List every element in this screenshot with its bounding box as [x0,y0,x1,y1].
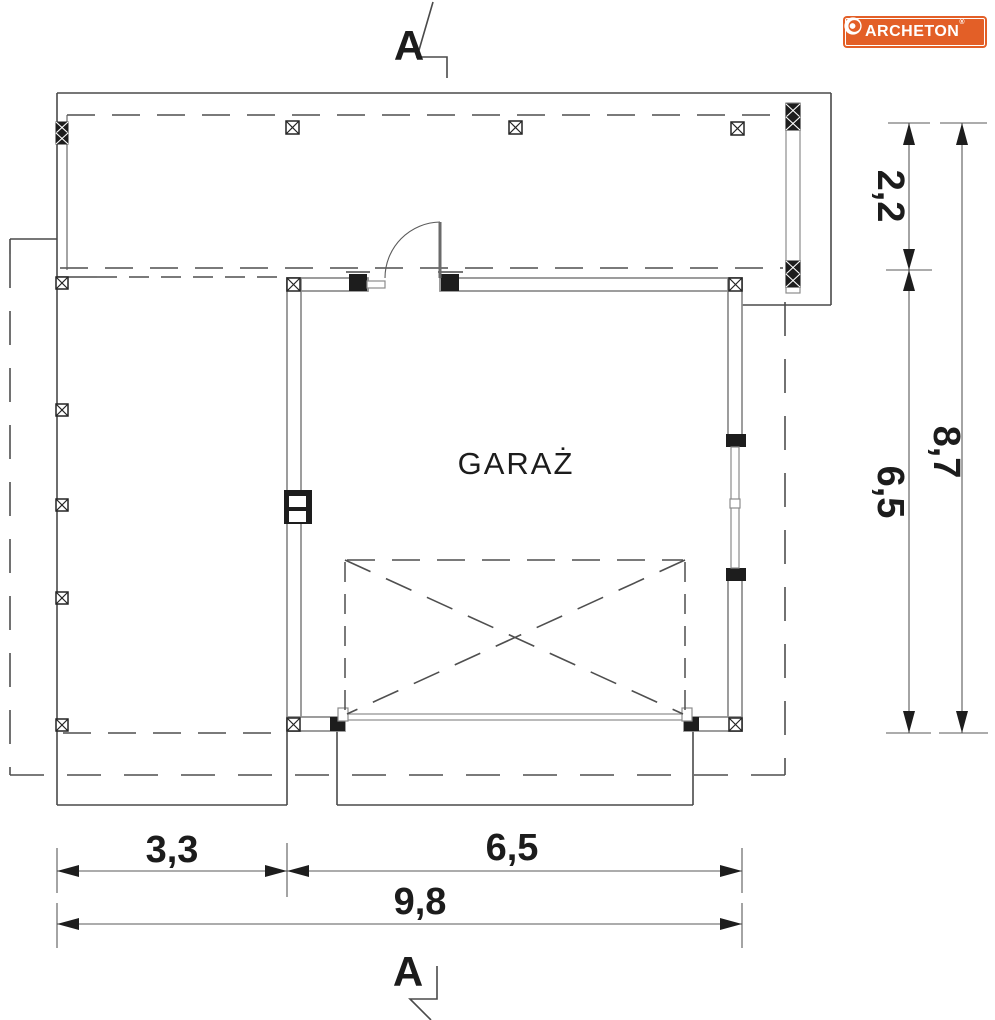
terrace-left [57,93,287,805]
column-marker-pair [786,104,800,130]
registered-trademark-symbol: ® [959,19,965,26]
column-marker [286,121,299,134]
column-marker-corner [287,718,300,731]
wall-right-upper [728,278,742,437]
wall-top-right-segment [440,278,742,291]
dimension-chain-right: 2,2 6,5 8,7 [869,123,988,733]
dim-value-right-lower: 6,5 [869,466,911,519]
gate-post-left [338,708,348,721]
column-marker-pair [56,122,68,144]
wall-right-lower [728,580,742,731]
column-marker [56,404,68,416]
archeton-logo-inner: ARCHETON® [845,18,985,46]
clearance-diagonal [345,560,683,714]
archeton-emblem-icon [843,16,863,36]
column-marker [56,592,68,604]
pier-top-left [349,274,367,291]
logo-wordmark: ARCHETON [865,23,959,40]
dim-arrow [720,865,742,877]
dim-arrow [956,123,968,145]
clearance-diagonal [347,560,685,714]
driveway-apron [337,731,693,805]
column-marker [509,121,522,134]
window-frame-top-block [726,434,746,447]
column-markers [56,121,744,731]
dim-value-right-upper: 2,2 [869,170,911,223]
canopy-band [57,93,831,305]
archeton-logo-text: ARCHETON® [865,24,965,40]
dim-arrow [903,270,915,291]
column-marker-pair [786,261,800,287]
dim-arrow [287,865,309,877]
floor-plan-sheet: A A [0,0,995,1020]
section-mark-top: A [394,2,447,78]
section-label-bottom: A [393,948,423,995]
archeton-logo: ARCHETON® [843,16,987,48]
dim-value-bottom-total: 9,8 [394,881,447,923]
window-frame-bottom-block [726,568,746,581]
pier-top-right [441,274,459,291]
section-mark-bottom: A [393,948,437,1020]
garage-gate [338,708,692,721]
entrance-door [385,222,440,278]
roof-outline [10,115,786,775]
dim-arrow [903,711,915,733]
gate-post-right [682,708,692,721]
dim-arrow [57,865,79,877]
column-marker [731,122,744,135]
dim-arrow [956,711,968,733]
dim-arrow [265,865,287,877]
dim-arrow [720,918,742,930]
column-marker-corner [729,718,742,731]
flue-duct [289,496,306,507]
column-marker-pairs [56,104,800,287]
dim-arrow [903,123,915,145]
gate-clearance-area [345,560,685,714]
dim-value-bottom-left: 3,3 [146,829,199,871]
room-label: GARAŻ [458,446,575,481]
column-marker [56,277,68,289]
column-marker-corner [287,278,300,291]
gate-leaf [345,714,685,720]
door-swing-arc [385,222,440,278]
window-mullion [730,499,740,508]
floor-plan-canvas: A A [0,0,995,1020]
dimension-chain-bottom: 3,3 6,5 9,8 [57,827,742,948]
garage-walls [287,272,742,731]
flue-block [284,490,312,524]
dim-arrow [903,249,915,270]
column-marker-corner [729,278,742,291]
dim-value-right-total: 8,7 [925,426,967,479]
flue-duct [289,511,306,522]
dim-arrow [57,918,79,930]
door-sill [367,281,385,288]
column-marker [56,719,68,731]
section-label-top: A [394,22,424,69]
dim-value-bottom-right: 6,5 [486,827,539,869]
column-marker [56,499,68,511]
window-right [726,434,746,581]
